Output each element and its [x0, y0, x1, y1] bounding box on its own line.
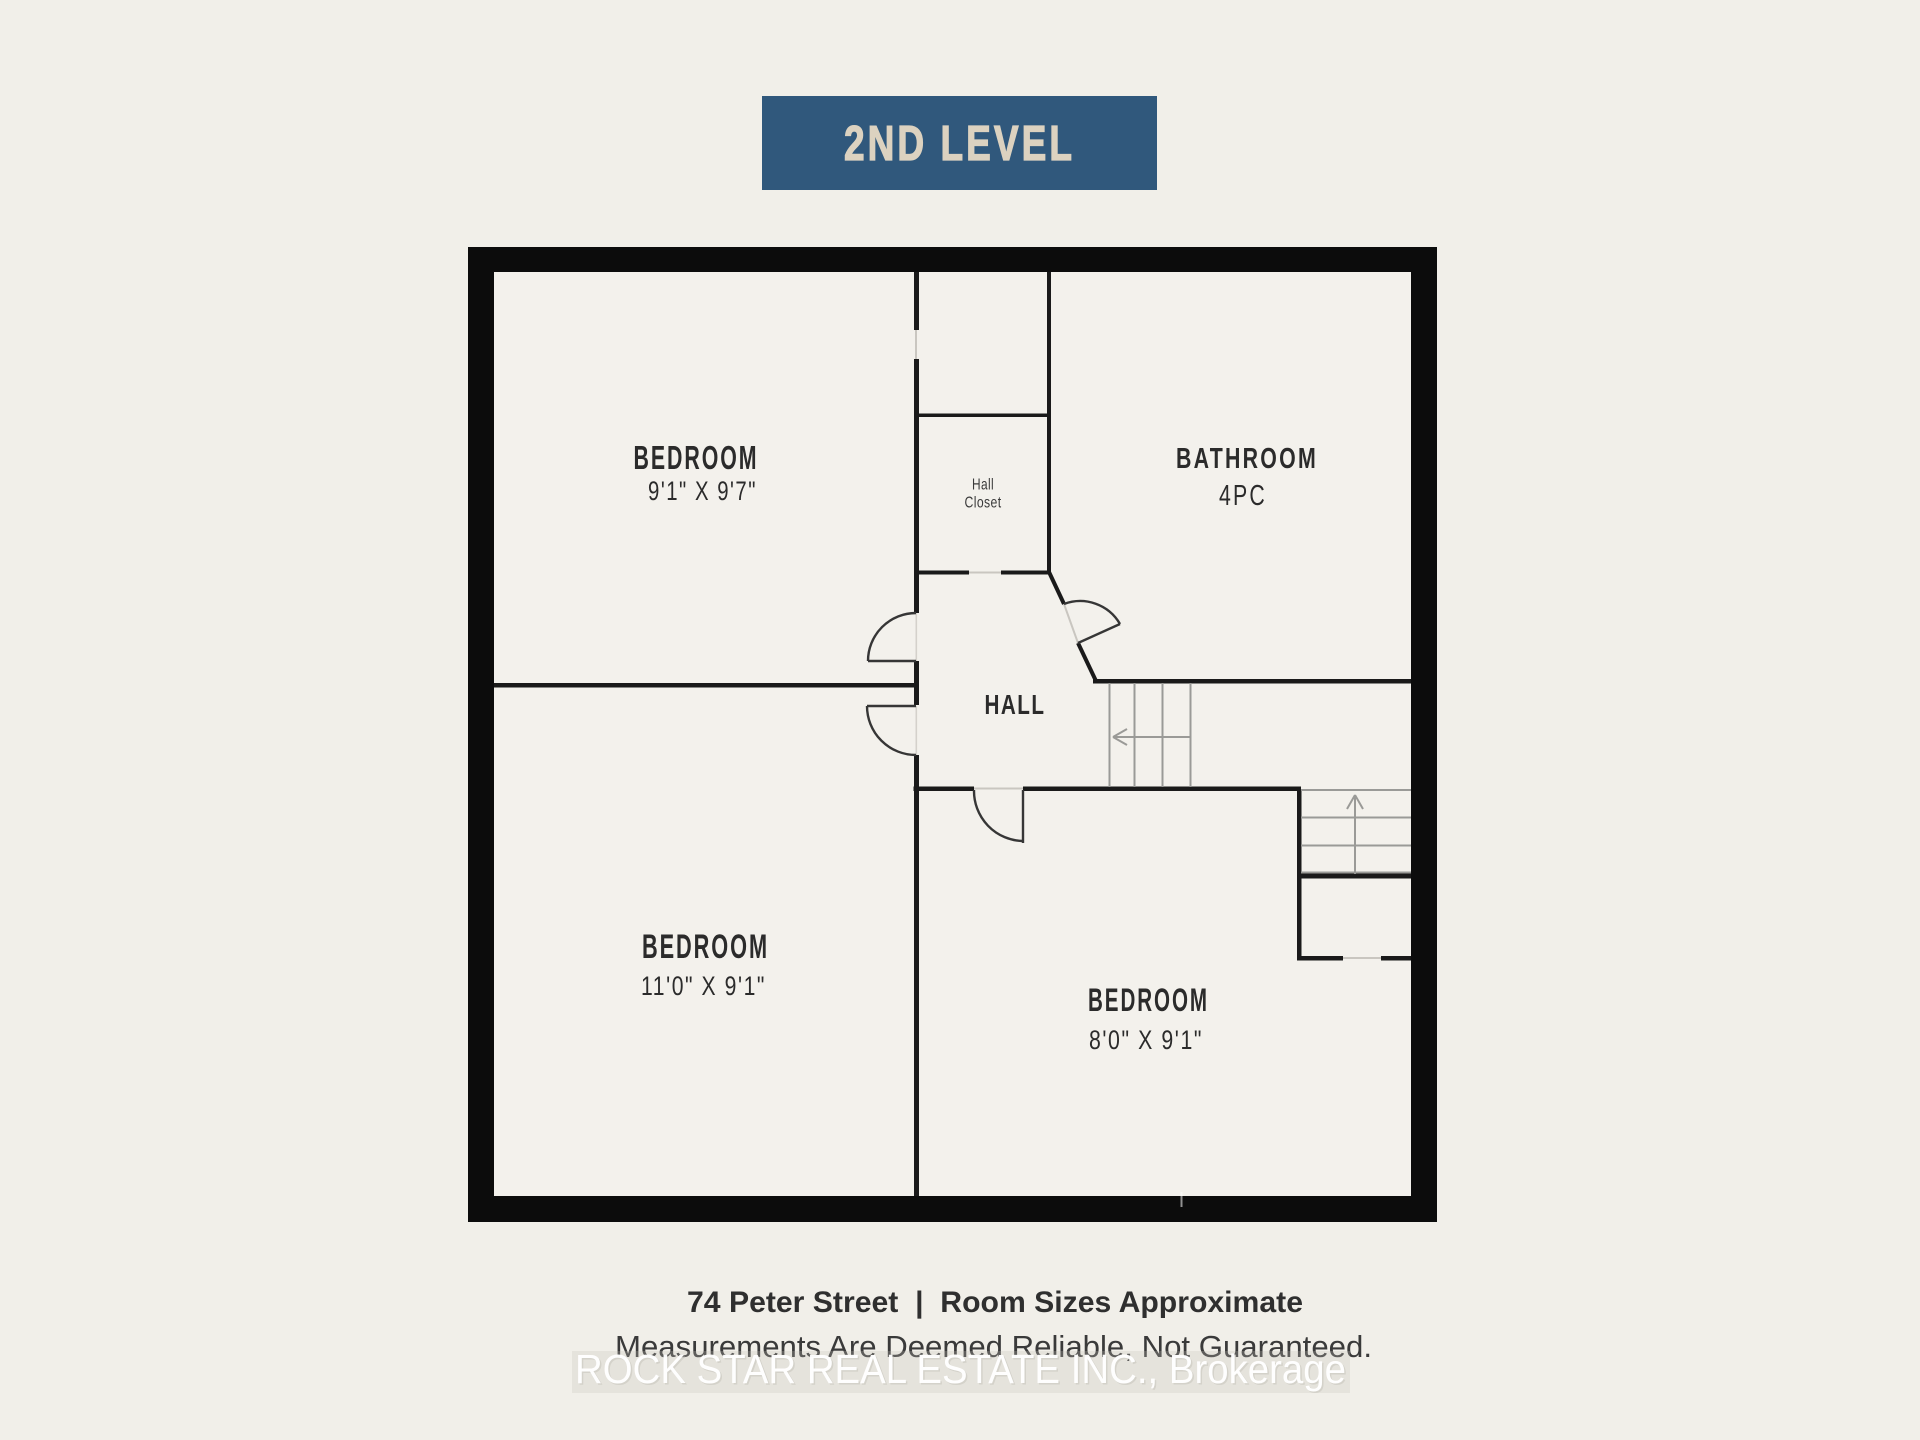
svg-text:4PC: 4PC [1219, 480, 1267, 512]
svg-text:BATHROOM: BATHROOM [1176, 443, 1318, 475]
svg-text:8'0" X 9'1": 8'0" X 9'1" [1089, 1025, 1203, 1055]
svg-text:11'0" X 9'1": 11'0" X 9'1" [641, 971, 766, 1001]
svg-text:BEDROOM: BEDROOM [634, 439, 759, 476]
svg-text:74 Peter Street | Room Sizes: 74 Peter Street | Room Sizes Approximate [687, 1286, 1303, 1319]
svg-text:9'1" X 9'7": 9'1" X 9'7" [648, 476, 757, 506]
svg-text:BEDROOM: BEDROOM [642, 928, 769, 966]
svg-text:Hall: Hall [972, 477, 994, 494]
svg-text:BEDROOM: BEDROOM [1088, 982, 1209, 1018]
svg-text:HALL: HALL [985, 689, 1046, 720]
svg-text:Closet: Closet [965, 495, 1002, 512]
svg-text:2ND LEVEL: 2ND LEVEL [844, 117, 1075, 171]
svg-text:ROCK STAR REAL ESTATE INC., Br: ROCK STAR REAL ESTATE INC., Brokerage [575, 1346, 1346, 1392]
